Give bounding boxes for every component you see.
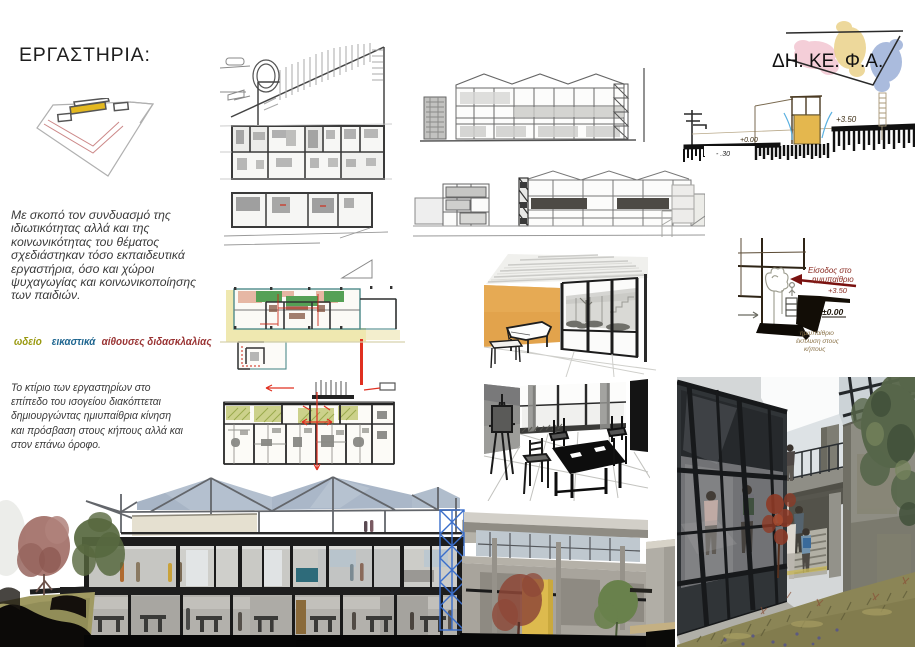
svg-text:+3.50: +3.50 [828,286,848,295]
svg-text:κήπους: κήπους [804,346,826,353]
svg-text:Είσοδος στο: Είσοδος στο [808,266,852,275]
svg-text:±0.00: ±0.00 [822,307,843,317]
svg-text:- .30: - .30 [716,151,730,158]
svg-text:+3.50: +3.50 [836,115,857,124]
svg-text:ΔΗ. ΚΕ. Φ.Α.: ΔΗ. ΚΕ. Φ.Α. [772,51,883,72]
svg-text:+0.00: +0.00 [740,137,758,144]
svg-text:έκπλυση στους: έκπλυση στους [796,337,840,345]
svg-text:ημιυπαίθριο: ημιυπαίθριο [800,329,834,337]
svg-text:ημιυπαίθριο: ημιυπαίθριο [812,275,854,284]
